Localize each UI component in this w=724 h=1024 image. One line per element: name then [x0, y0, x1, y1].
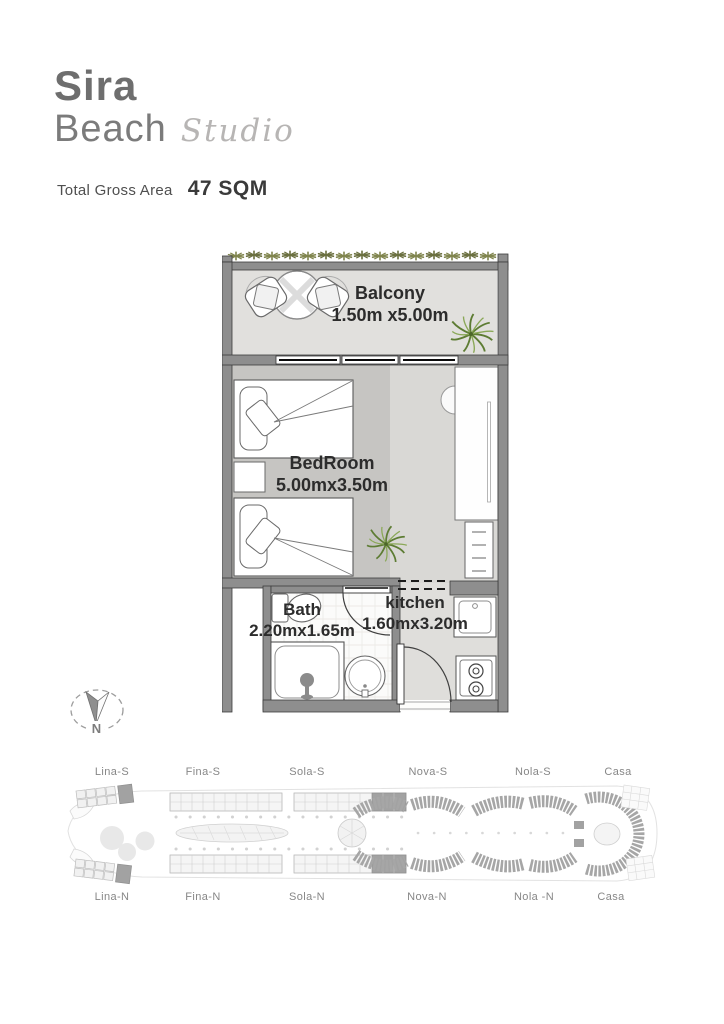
kitchen-name: kitchen: [362, 592, 468, 613]
siteplan-label-nola-n: Nola -N: [514, 891, 554, 903]
siteplan-plaza: [338, 819, 366, 847]
entrance-threshold: [400, 701, 450, 711]
nightstand: [234, 462, 265, 492]
bath-dims: 2.20mx1.65m: [249, 620, 355, 641]
siteplan-label-lina-n: Lina-N: [95, 891, 130, 903]
balcony-dims: 1.50m x5.00m: [331, 304, 448, 326]
gross-area-value: 47 SQM: [188, 177, 268, 201]
siteplan-casa-block: [574, 785, 655, 881]
north-label: N: [89, 721, 105, 736]
hedge-plants: [228, 251, 496, 261]
siteplan-label-nova-s: Nova-S: [408, 766, 447, 778]
siteplan-label-nova-n: Nova-N: [407, 891, 447, 903]
north-compass: N: [68, 686, 126, 748]
siteplan-fina-n-block: [170, 855, 282, 873]
bed-top: [234, 380, 353, 458]
washbasin: [345, 656, 385, 697]
sliding-windows: [276, 356, 458, 364]
siteplan-fina-s-block: [170, 793, 282, 811]
shower: [270, 642, 344, 702]
bedroom-dims: 5.00mx3.50m: [276, 474, 388, 496]
balcony-name: Balcony: [331, 282, 448, 304]
gross-area-label: Total Gross Area: [57, 182, 173, 199]
bath-name: Bath: [249, 599, 355, 620]
siteplan-nola-blocks: [474, 801, 574, 867]
project-subtitle: BeachStudio: [54, 108, 295, 151]
balcony-label: Balcony 1.50m x5.00m: [331, 282, 448, 326]
siteplan-sola-s-block: [294, 793, 406, 811]
floor-plan: Balcony 1.50m x5.00m BedRoom 5.00mx3.50m…: [222, 250, 512, 720]
siteplan-label-sola-s: Sola-S: [289, 766, 324, 778]
siteplan-label-lina-s: Lina-S: [95, 766, 129, 778]
kitchen-dims: 1.60mx3.20m: [362, 613, 468, 634]
siteplan-sola-n-block: [294, 855, 406, 873]
siteplan-label-casa-s: Casa: [604, 766, 631, 778]
siteplan-lina-s-block: [76, 784, 134, 809]
siteplan-label-casa-n: Casa: [597, 891, 624, 903]
gross-area-line: Total Gross Area 47 SQM: [57, 177, 268, 201]
siteplan-label-fina-n: Fina-N: [185, 891, 220, 903]
siteplan-promenade: [176, 824, 288, 842]
project-title: Sira: [54, 62, 137, 110]
siteplan-label-nola-s: Nola-S: [515, 766, 551, 778]
project-subtitle-script: Studio: [181, 113, 295, 149]
siteplan-label-fina-s: Fina-S: [186, 766, 221, 778]
siteplan-label-sola-n: Sola-N: [289, 891, 325, 903]
drawer-unit: [465, 522, 493, 578]
bedroom-name: BedRoom: [276, 452, 388, 474]
bed-bottom: [234, 498, 353, 576]
project-subtitle-main: Beach: [54, 108, 167, 150]
site-plan-graphic: [62, 781, 662, 887]
kitchen-label: kitchen 1.60mx3.20m: [362, 592, 468, 634]
siteplan-lina-n-block: [74, 859, 132, 884]
bedroom-label: BedRoom 5.00mx3.50m: [276, 452, 388, 496]
stove: [456, 656, 496, 700]
bath-label: Bath 2.20mx1.65m: [249, 599, 355, 641]
